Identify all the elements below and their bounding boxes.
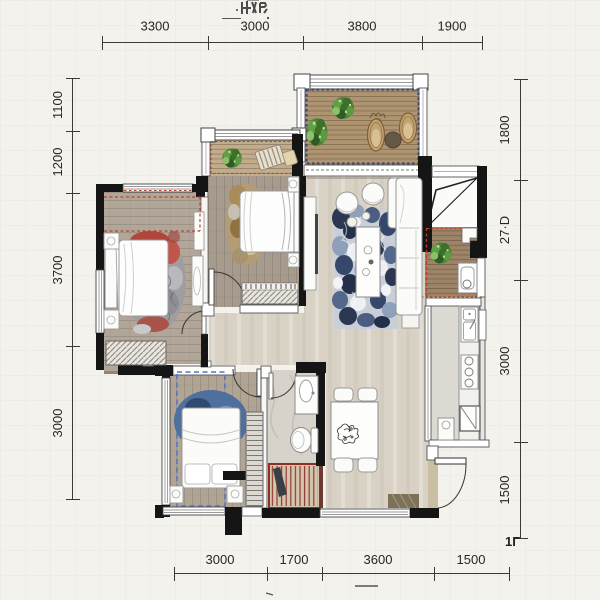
svg-text:1700: 1700	[280, 552, 309, 567]
svg-text:1800: 1800	[497, 116, 512, 145]
svg-text:3800: 3800	[348, 19, 377, 34]
svg-text:3000: 3000	[206, 552, 235, 567]
svg-text:3000: 3000	[497, 347, 512, 376]
svg-text:3000: 3000	[241, 19, 270, 34]
svg-text:1500: 1500	[497, 476, 512, 505]
svg-text:1900: 1900	[438, 19, 467, 34]
svg-text:3700: 3700	[50, 256, 65, 285]
svg-text:1500: 1500	[457, 552, 486, 567]
svg-text:27·D: 27·D	[497, 216, 512, 244]
svg-text:3600: 3600	[364, 552, 393, 567]
svg-text:1200: 1200	[50, 148, 65, 177]
svg-text:3000: 3000	[50, 409, 65, 438]
svg-text:1Γ: 1Γ	[505, 534, 520, 549]
svg-text:1100: 1100	[50, 91, 65, 119]
svg-text:3300: 3300	[141, 19, 170, 34]
